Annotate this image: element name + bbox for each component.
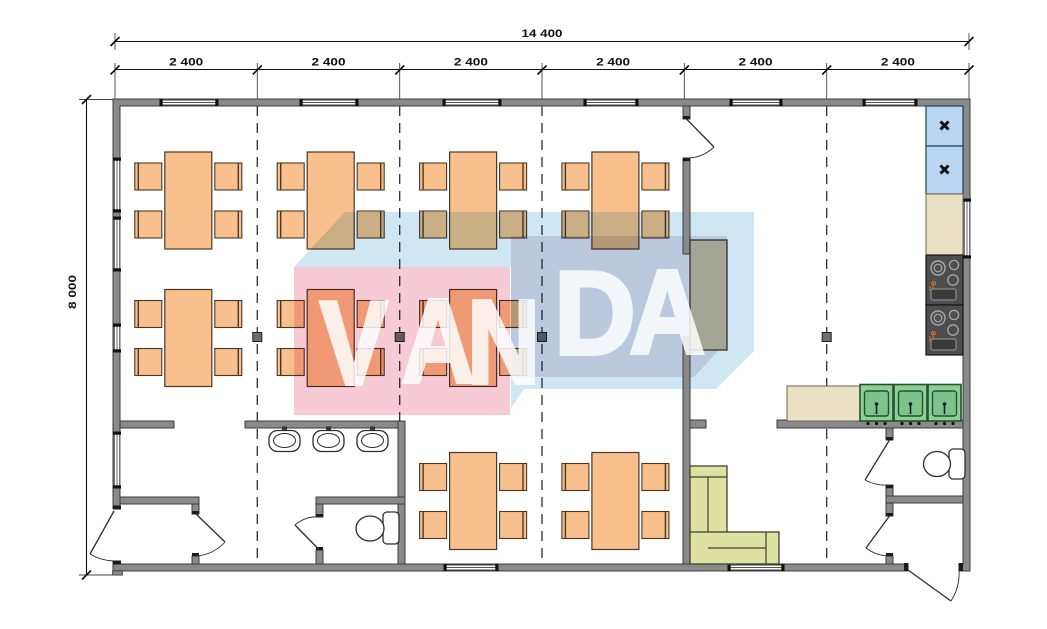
svg-text:A: A: [402, 275, 475, 408]
svg-text:2 400: 2 400: [169, 57, 203, 69]
svg-text:V: V: [320, 277, 387, 410]
svg-text:2 400: 2 400: [454, 57, 488, 69]
svg-text:2 400: 2 400: [739, 57, 773, 69]
svg-text:2 400: 2 400: [881, 57, 915, 69]
svg-text:2 400: 2 400: [596, 57, 630, 69]
svg-text:N: N: [467, 276, 540, 409]
svg-text:14 400: 14 400: [522, 28, 563, 40]
svg-text:D: D: [554, 246, 636, 379]
svg-text:8 000: 8 000: [67, 275, 79, 309]
svg-text:A: A: [630, 246, 706, 379]
svg-text:2 400: 2 400: [312, 57, 346, 69]
